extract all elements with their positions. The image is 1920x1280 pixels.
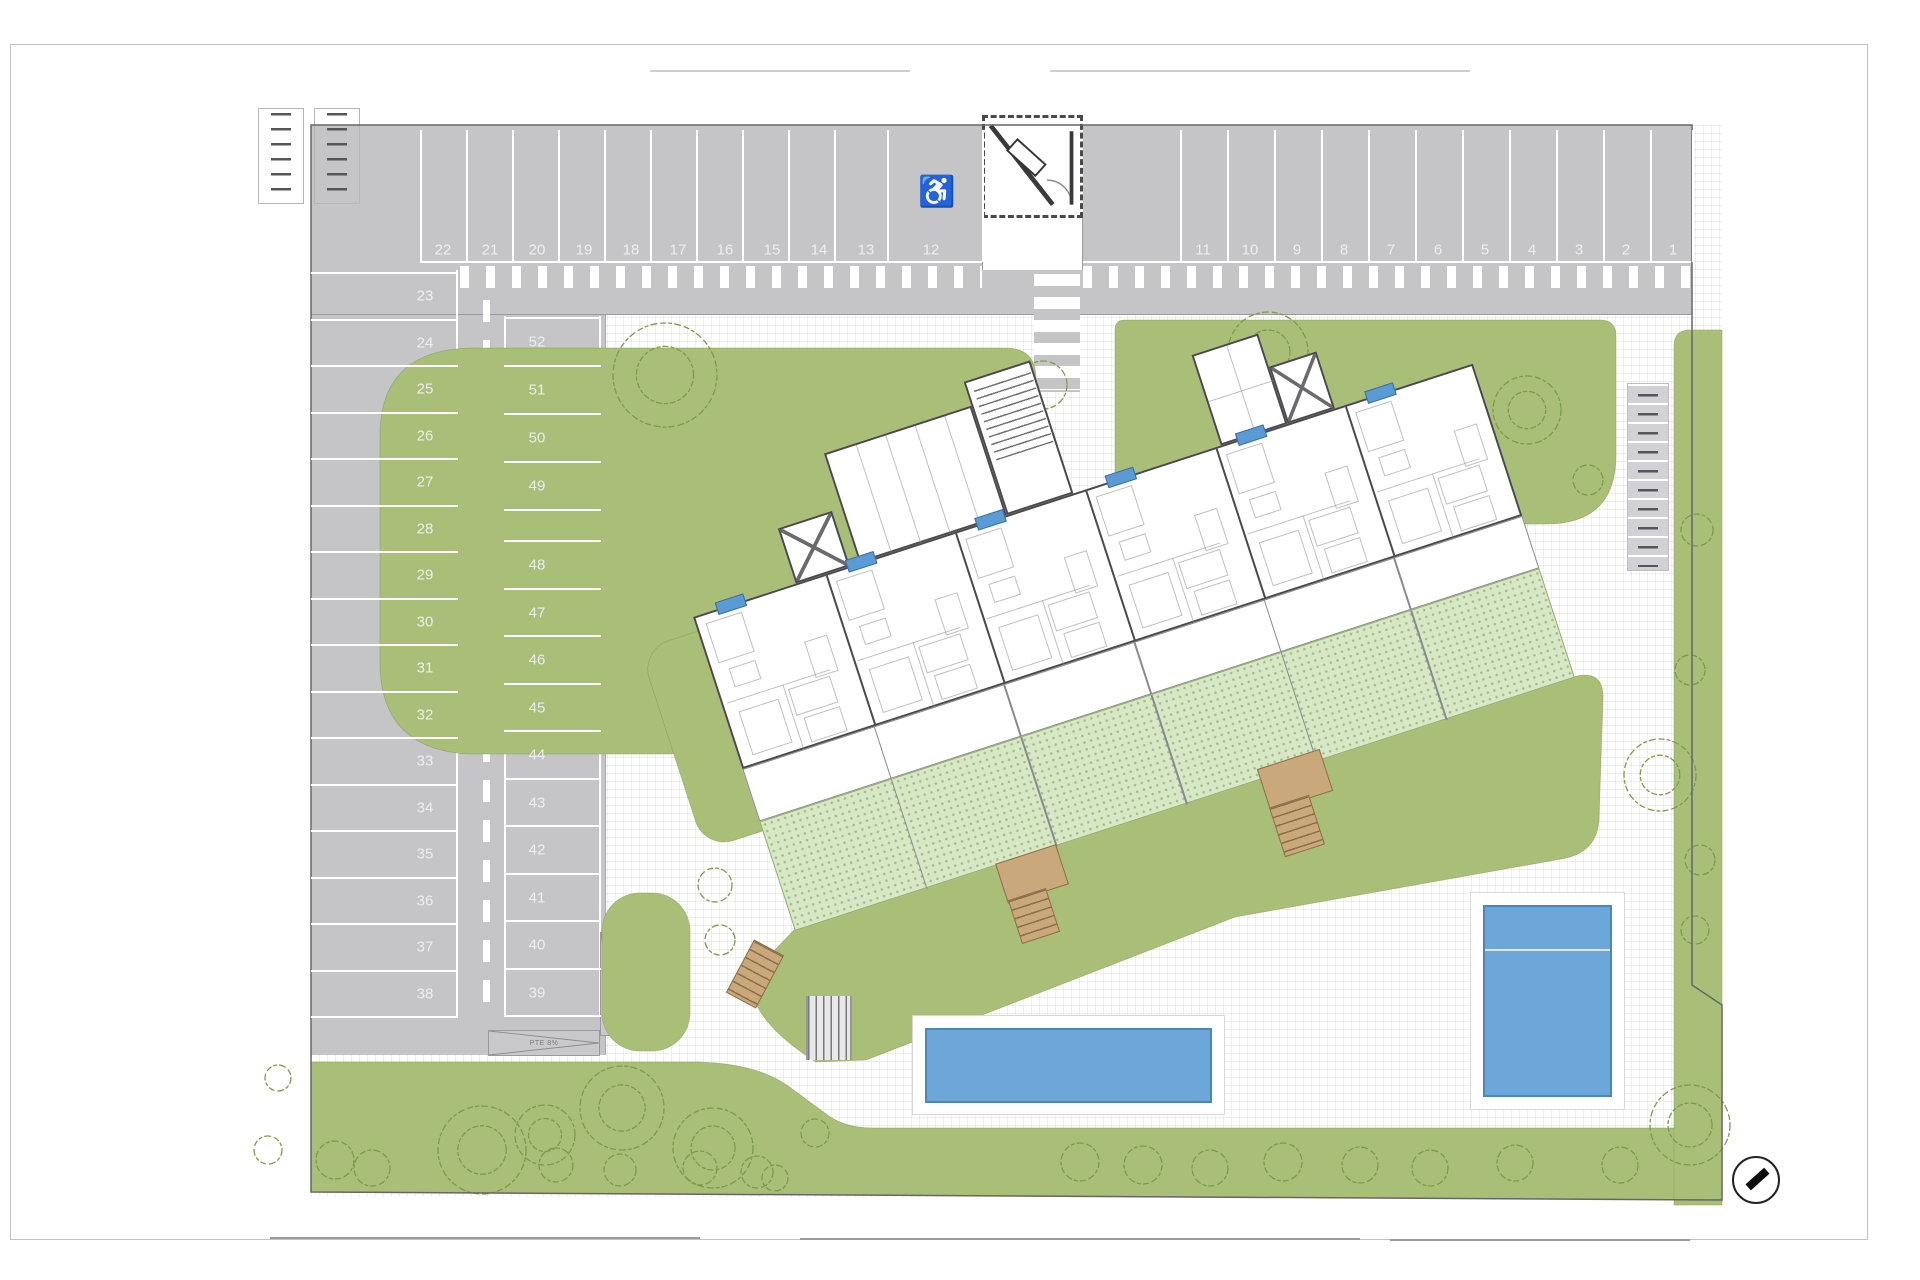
parking-stall-number: 16 (717, 242, 734, 259)
north-arrow-compass (1732, 1156, 1780, 1204)
stall-line (504, 316, 506, 1016)
stall-divider (504, 730, 601, 732)
parking-stall-number: 48 (529, 557, 546, 574)
wheelchair-icon: ♿ (918, 175, 955, 210)
stall-divider (742, 130, 744, 262)
stall-divider (311, 877, 458, 879)
parking-stall-number: 49 (529, 478, 546, 495)
parking-stall-number: 23 (417, 288, 434, 305)
parking-stall-number: 32 (417, 706, 434, 723)
ramp-label: PTE 8% (489, 1031, 599, 1055)
bedroom (868, 656, 922, 713)
bike-icons (1638, 387, 1658, 567)
sofa (1119, 533, 1152, 561)
ramp-label: PTE 6% (564, 970, 666, 998)
bedroom (1258, 530, 1312, 587)
stall-divider (311, 830, 458, 832)
stall-divider (504, 968, 601, 970)
terrace-divider (1394, 558, 1412, 611)
stall-divider (1415, 130, 1417, 262)
stall-divider (311, 319, 458, 321)
gate-leaf-drawing (985, 118, 1080, 215)
stall-divider (1368, 130, 1370, 262)
swimming-pool-small (1483, 905, 1612, 1097)
utility-box (602, 505, 648, 549)
parking-stall-number: 13 (858, 242, 875, 259)
stall-divider (466, 130, 468, 262)
parking-stall-number: 21 (482, 242, 499, 259)
stall-divider (1180, 130, 1182, 262)
stall-divider (311, 412, 458, 414)
dining-table (934, 592, 969, 636)
parking-stall-number: 45 (529, 699, 546, 716)
stall-divider (788, 130, 790, 262)
parking-stall-number: 52 (529, 334, 546, 351)
stall-divider (982, 130, 984, 262)
bike-parking-strip (1627, 383, 1669, 571)
access-ramp: PTE 8% (1458, 322, 1572, 350)
parking-stall-number: 20 (529, 242, 546, 259)
stall-divider (311, 970, 458, 972)
site-plan-sheet: ♿ PTE 8% PTE 8% PTE 8% PTE 6% (0, 0, 1920, 1280)
stall-divider (504, 635, 601, 637)
dining-table (1064, 550, 1099, 594)
stall-divider (1509, 130, 1511, 262)
parking-stall-number: 14 (811, 242, 828, 259)
stall-divider (1227, 130, 1229, 262)
terrace-divider (1264, 600, 1282, 653)
stall-divider (1650, 130, 1652, 262)
parking-stall-number: 9 (1293, 242, 1301, 259)
sofa (989, 575, 1022, 603)
garden-divider (1151, 695, 1188, 805)
dining-table (1454, 423, 1489, 467)
bike-rack-marks (327, 113, 347, 199)
parking-stall-number: 33 (417, 753, 434, 770)
bike-rack-marks (271, 113, 291, 199)
sheet-line (800, 1238, 1360, 1240)
garden-divider (1281, 653, 1318, 763)
stall-divider (504, 461, 601, 463)
crosswalk-dashes (1083, 266, 1692, 288)
sheet-line (650, 70, 910, 72)
sofa (859, 618, 892, 646)
road-edge (311, 314, 1692, 315)
parking-stall-number: 3 (1575, 242, 1583, 259)
compass-needle (1746, 1168, 1770, 1191)
parking-stall-number: 44 (529, 747, 546, 764)
bathroom (966, 527, 1015, 579)
stall-divider (834, 130, 836, 262)
parking-stall-number: 35 (417, 846, 434, 863)
parking-stall-number: 47 (529, 604, 546, 621)
stall-divider (1556, 130, 1558, 262)
parking-stall-number: 18 (623, 242, 640, 259)
stall-divider (504, 683, 601, 685)
parking-stall-number: 31 (417, 660, 434, 677)
garden-divider (1411, 610, 1448, 720)
bedroom (998, 614, 1052, 671)
stall-divider (1321, 130, 1323, 262)
parking-stall-number: 51 (529, 382, 546, 399)
bedroom (1128, 572, 1182, 629)
stall-line (599, 316, 601, 1016)
stall-line (1083, 261, 1692, 263)
garage-ramp: PTE 8% (488, 1030, 600, 1056)
parking-stall-number: 6 (1434, 242, 1442, 259)
bathroom (836, 569, 885, 621)
stall-divider (504, 317, 601, 319)
stall-divider (311, 644, 458, 646)
stall-divider (887, 130, 889, 262)
terrace-divider (1134, 643, 1152, 696)
sofa (1249, 491, 1282, 519)
swimming-pool-main (925, 1028, 1212, 1103)
stall-divider (311, 505, 458, 507)
stall-divider (696, 130, 698, 262)
stall-divider (512, 130, 514, 262)
sheet-line (1390, 1239, 1690, 1241)
parking-stall-number: 2 (1622, 242, 1630, 259)
parking-stall-number: 26 (417, 427, 434, 444)
parking-stall-number: 11 (1195, 242, 1211, 259)
crosswalk-dashes (460, 266, 982, 288)
stall-divider (311, 458, 458, 460)
parking-stall-number: 37 (417, 939, 434, 956)
parking-stall-number: 34 (417, 799, 434, 816)
stall-divider (650, 130, 652, 262)
parking-stall-number: 36 (417, 892, 434, 909)
stall-divider (311, 598, 458, 600)
concrete-steps (806, 996, 852, 1060)
bedroom (738, 699, 792, 756)
stall-divider (311, 1016, 458, 1018)
stall-divider (311, 551, 458, 553)
garden-divider (891, 779, 928, 889)
stall-divider (504, 873, 601, 875)
bike-rack-box (258, 108, 304, 204)
parking-stall-number: 10 (1242, 242, 1259, 259)
dining-table (1324, 466, 1359, 510)
dining-table (804, 634, 839, 678)
parking-stall-number: 40 (529, 937, 546, 954)
sheet-line (270, 1237, 700, 1239)
parking-stall-number: 46 (529, 652, 546, 669)
stall-line (456, 270, 458, 1016)
zebra-crossing (1034, 272, 1080, 392)
parking-stall-number: 39 (529, 984, 546, 1001)
bike-rack-box (314, 108, 360, 204)
access-ramp: PTE 8% (1315, 322, 1430, 350)
parking-stall-number: 4 (1528, 242, 1536, 259)
parking-stall-number: 29 (417, 567, 434, 584)
stall-divider (504, 778, 601, 780)
stall-divider (558, 130, 560, 262)
ramp-label: PTE 8% (1316, 323, 1429, 349)
parking-stall-number: 7 (1387, 242, 1395, 259)
stall-divider (311, 784, 458, 786)
stall-divider (1603, 130, 1605, 262)
terrace-divider (874, 727, 892, 780)
stall-divider (1692, 130, 1694, 262)
bedroom (1388, 487, 1442, 544)
stall-divider (504, 1015, 601, 1017)
sofa (729, 660, 762, 688)
stall-divider (504, 540, 601, 542)
stall-divider (1462, 130, 1464, 262)
stall-divider (504, 509, 601, 511)
stall-divider (311, 737, 458, 739)
parking-stall-number: 17 (670, 242, 687, 259)
stall-divider (420, 130, 422, 262)
bathroom (1355, 401, 1404, 453)
stall-divider (504, 920, 601, 922)
parking-stall-number: 24 (417, 334, 434, 351)
parking-road-left (311, 268, 605, 1055)
parking-stall-number: 12 (923, 242, 940, 259)
parking-stall-number: 28 (417, 520, 434, 537)
parking-stall-number: 8 (1340, 242, 1348, 259)
entrance-gatehouse (982, 115, 1083, 218)
garden-divider (1021, 737, 1058, 847)
stall-divider (504, 588, 601, 590)
parking-stall-number: 38 (417, 985, 434, 1002)
bathroom (706, 612, 755, 664)
stall-divider (504, 365, 601, 367)
parking-stall-number: 5 (1481, 242, 1489, 259)
stall-divider (311, 691, 458, 693)
sheet-line (1050, 70, 1470, 72)
stall-divider (504, 825, 601, 827)
stall-divider (311, 923, 458, 925)
parking-stall-number: 42 (529, 842, 546, 859)
parking-stall-number: 43 (529, 794, 546, 811)
entrance-walk (982, 218, 1083, 270)
parking-stall-number: 19 (576, 242, 593, 259)
parking-stall-number: 25 (417, 381, 434, 398)
parking-stall-number: 1 (1669, 242, 1677, 259)
stall-line (420, 261, 982, 263)
path-ramp: PTE 6% (600, 932, 630, 1036)
parking-stall-number: 22 (435, 242, 452, 259)
stall-divider (311, 365, 458, 367)
stall-divider (311, 272, 458, 274)
ramp-label: PTE 8% (1459, 323, 1571, 349)
parking-stall-number: 30 (417, 613, 434, 630)
bathroom (1096, 485, 1145, 537)
sofa (1379, 449, 1412, 477)
parking-stall-number: 50 (529, 430, 546, 447)
bathroom (1226, 443, 1275, 495)
stall-divider (1274, 130, 1276, 262)
road-centerline (483, 300, 490, 1012)
parking-stall-number: 15 (764, 242, 781, 259)
dining-table (1194, 508, 1229, 552)
stall-divider (504, 413, 601, 415)
parking-stall-number: 27 (417, 474, 434, 491)
terrace-divider (1004, 685, 1022, 738)
parking-stall-number: 41 (529, 889, 546, 906)
stall-divider (604, 130, 606, 262)
